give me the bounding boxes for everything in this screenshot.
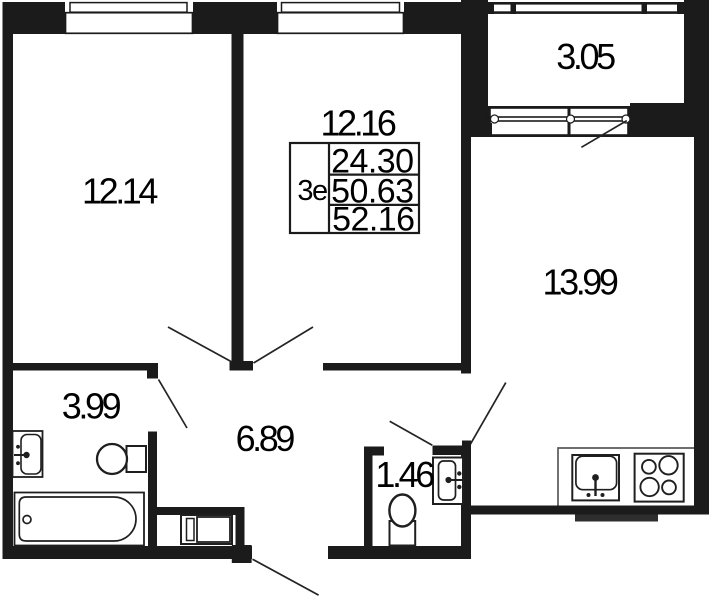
svg-text:1.46: 1.46: [375, 454, 434, 495]
svg-text:12.16: 12.16: [320, 102, 395, 143]
svg-text:3е: 3е: [297, 175, 327, 207]
svg-text:12.14: 12.14: [82, 171, 157, 212]
svg-text:52.16: 52.16: [332, 201, 414, 239]
svg-text:3.05: 3.05: [556, 36, 615, 77]
svg-text:13.99: 13.99: [542, 262, 617, 303]
svg-text:6.89: 6.89: [236, 418, 295, 459]
svg-text:3.99: 3.99: [62, 386, 121, 427]
